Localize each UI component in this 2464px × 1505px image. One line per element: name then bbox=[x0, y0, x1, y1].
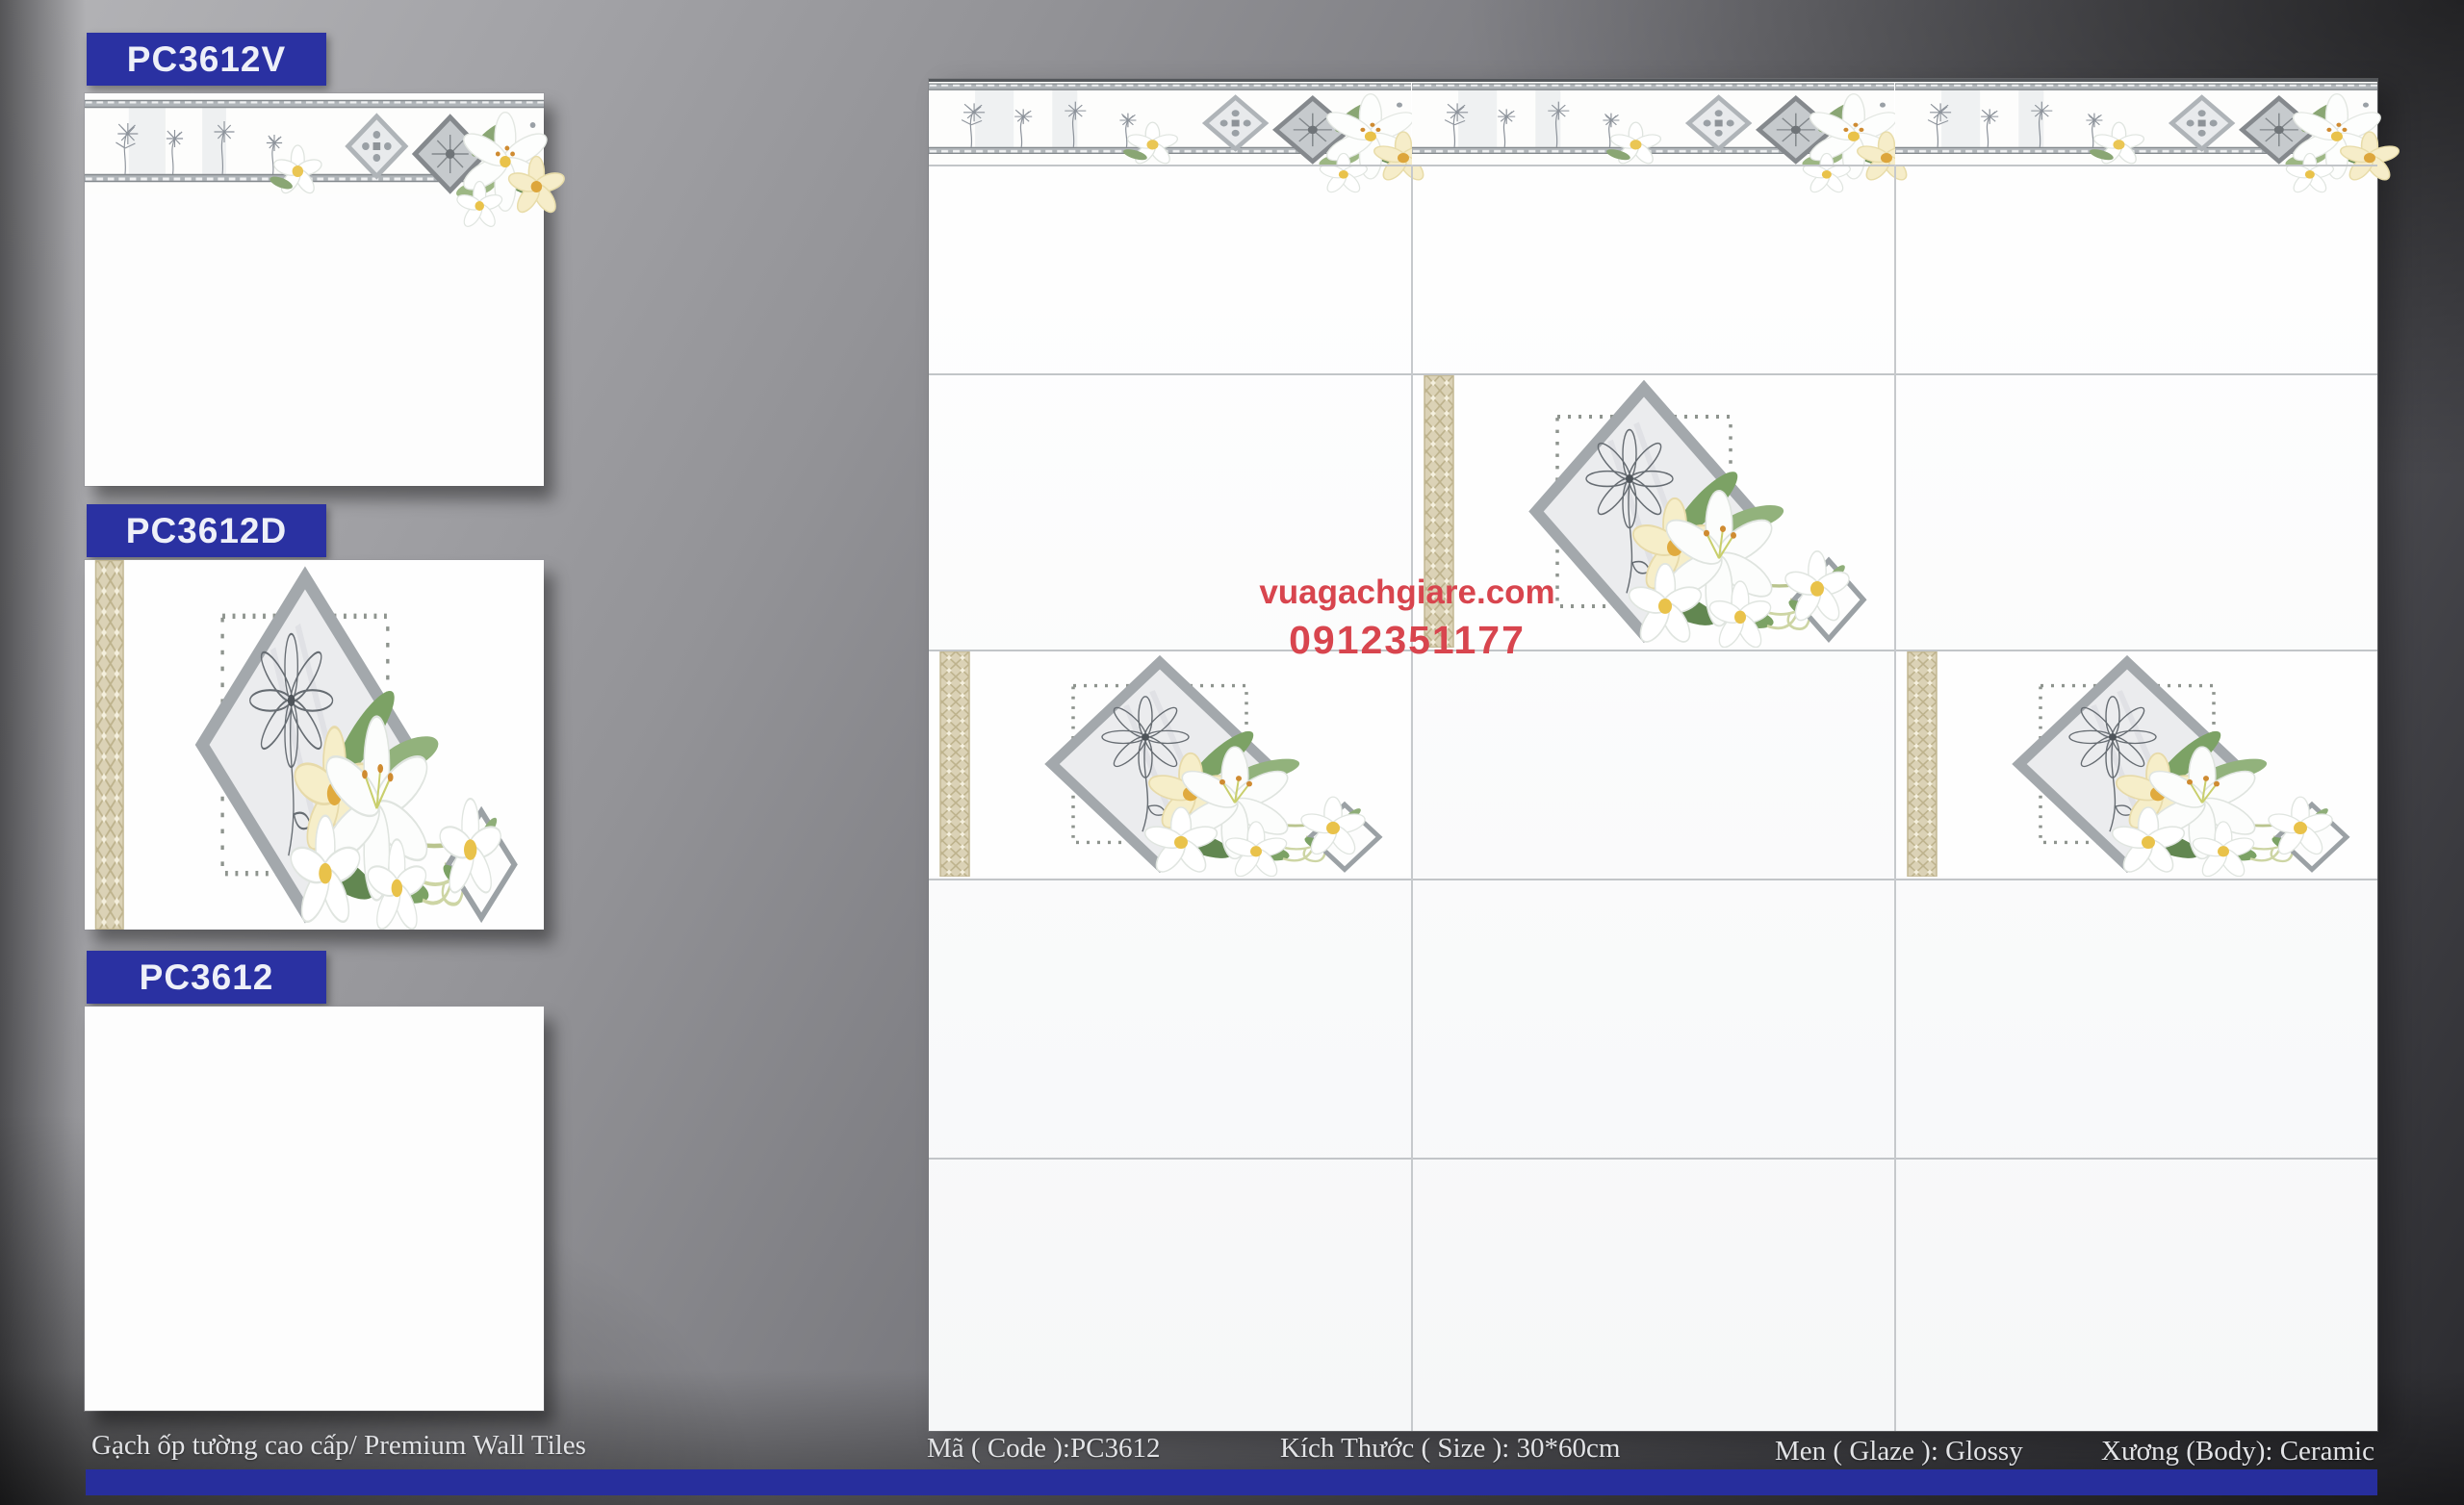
watermark-website: vuagachgiare.com bbox=[1167, 574, 1648, 612]
wall-decor-tile-art bbox=[929, 651, 1410, 877]
footer-glaze-label: Men ( Glaze ): Glossy bbox=[1775, 1436, 2023, 1467]
wall-border-strip-art bbox=[1895, 82, 2377, 165]
grout-line bbox=[1411, 165, 1413, 1431]
sample-code-label: PC3612D bbox=[126, 511, 287, 551]
tile-sample-pc3612 bbox=[85, 1007, 544, 1411]
grout-line bbox=[929, 165, 2377, 166]
decor-tile-art bbox=[85, 560, 544, 930]
sample-code-badge-pc3612: PC3612 bbox=[87, 951, 326, 1004]
watermark-phone: 0912351177 bbox=[1167, 619, 1648, 662]
footer-code-label: Mã ( Code ):PC3612 bbox=[927, 1433, 1160, 1465]
grout-line bbox=[929, 1158, 2377, 1160]
wall-mockup: vuagachgiare.com 0912351177 bbox=[929, 79, 2377, 1431]
sample-code-badge-pc3612d: PC3612D bbox=[87, 504, 326, 557]
watermark: vuagachgiare.com 0912351177 bbox=[1167, 574, 1648, 662]
footer-size-label: Kích Thước ( Size ): 30*60cm bbox=[1280, 1433, 1620, 1465]
wall-decor-tile-art bbox=[1896, 651, 2377, 877]
catalog-page: PC3612V PC3612D PC3612 vuagachgiare.com … bbox=[0, 0, 2464, 1505]
footer-accent-bar bbox=[86, 1469, 2377, 1495]
wall-border-strip-art bbox=[929, 82, 1411, 165]
footer-product-label: Gạch ốp tường cao cấp/ Premium Wall Tile… bbox=[91, 1430, 586, 1462]
tile-sample-pc3612d bbox=[85, 560, 544, 930]
border-strip-art bbox=[85, 98, 544, 194]
sample-code-badge-pc3612v: PC3612V bbox=[87, 33, 326, 86]
wall-border-strip-art bbox=[1412, 82, 1894, 165]
sample-code-label: PC3612 bbox=[140, 957, 274, 998]
sample-code-label: PC3612V bbox=[127, 39, 286, 80]
grout-line bbox=[929, 879, 2377, 880]
footer-body-label: Xương (Body): Ceramic bbox=[2101, 1436, 2374, 1467]
tile-sample-pc3612v bbox=[85, 93, 544, 486]
